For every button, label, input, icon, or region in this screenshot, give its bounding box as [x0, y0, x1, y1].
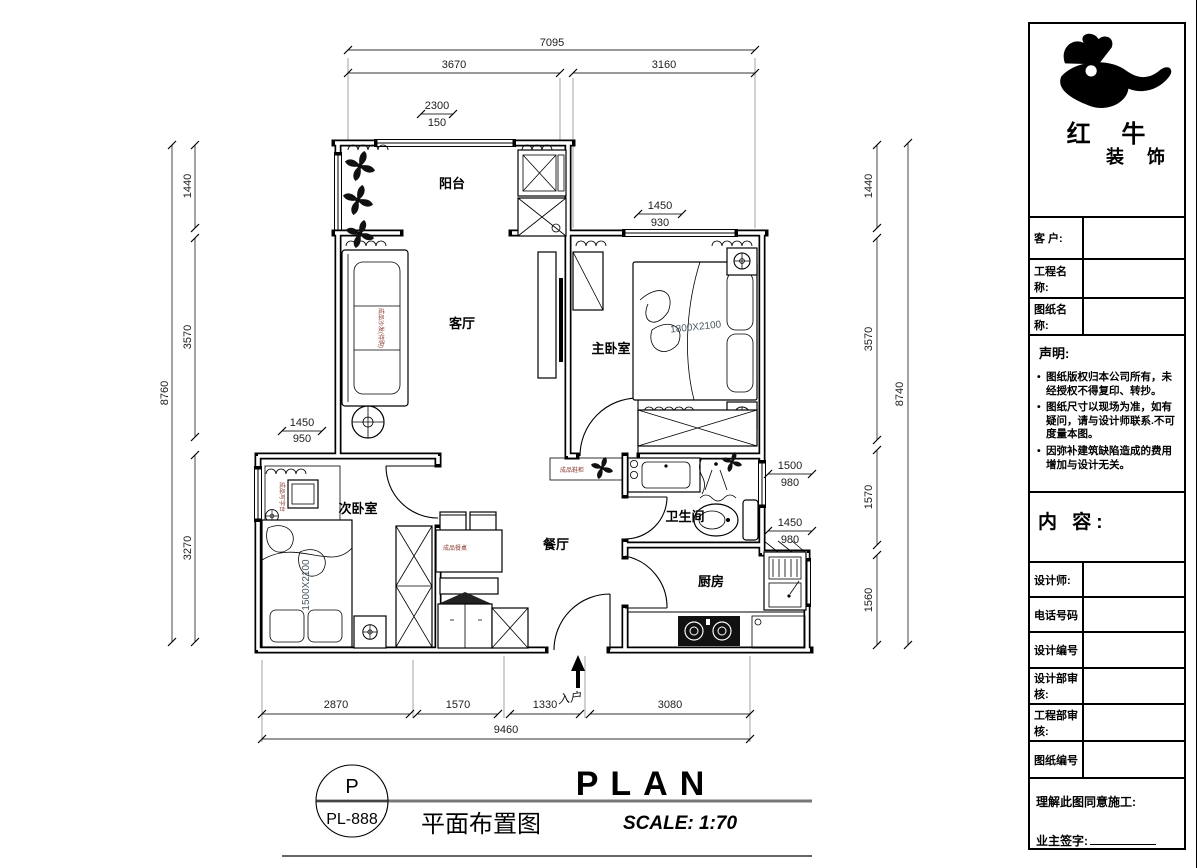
field-drawing-no: 图纸编号 [1030, 742, 1184, 779]
dim-bottom-4: 3080 [658, 699, 682, 711]
dim-top-overall: 7095 [540, 37, 564, 49]
plant-icon [343, 185, 373, 215]
dim-balcony-win-num: 2300 [425, 100, 449, 112]
tv-panel [559, 278, 563, 362]
brand-box: 红 牛 装 饰 [1030, 24, 1184, 218]
badge-code: PL-888 [326, 811, 378, 828]
statement-heading: 声明: [1039, 346, 1179, 363]
field-project: 工程名称: [1030, 260, 1184, 299]
bath-door [625, 497, 667, 539]
dim-right-overall: 8740 [894, 382, 906, 406]
dim-right-4: 1560 [863, 588, 875, 612]
content-heading: 内 容: [1030, 493, 1184, 563]
field-eng-review: 工程部审核: [1030, 705, 1184, 742]
field-client-value [1084, 218, 1184, 258]
dim-top-right: 3160 [652, 59, 676, 71]
dim-bath-win-den: 980 [781, 477, 799, 489]
field-phone-label: 电话号码 [1030, 598, 1084, 631]
dim-right-3: 1570 [863, 485, 875, 509]
room-label-second: 次卧室 [338, 501, 377, 516]
room-label-balcony: 阳台 [439, 176, 465, 191]
statement-item: 因弥补建筑缺陷造成的费用增加与设计无关。 [1035, 445, 1179, 472]
approval-box: 理解此图同意施工: 业主签字: [1030, 779, 1184, 849]
field-drawing-no-label: 图纸编号 [1030, 742, 1084, 777]
sofa [342, 250, 408, 406]
dim-left-3: 3270 [182, 536, 194, 560]
corner-unit [752, 616, 805, 648]
second-wardrobe [396, 526, 432, 647]
dim-left-1: 1440 [182, 174, 194, 198]
room-label-bath: 卫生间 [665, 509, 704, 524]
plant-icon [345, 151, 375, 181]
field-drawing-name-label: 图纸名称: [1030, 299, 1084, 334]
bathroom [628, 452, 758, 540]
field-client: 客 户: [1030, 218, 1184, 260]
room-label-dining: 餐厅 [542, 537, 569, 552]
field-drawing-name: 图纸名称: [1030, 299, 1184, 336]
field-project-label: 工程名称: [1030, 260, 1084, 297]
dim-bottom-3: 1330 [533, 699, 557, 711]
footer-scale: SCALE: 1:70 [623, 813, 737, 834]
sofa-label: 成品沙发(待购) [377, 308, 385, 348]
title-block: 红 牛 装 饰 客 户: 工程名称: 图纸名称: 声明: 图纸版权归本公司所有，… [1028, 22, 1186, 850]
second-bedroom-door [386, 466, 438, 518]
room-label-master: 主卧室 [591, 341, 630, 356]
dim-kitchen-win-num: 1450 [778, 517, 802, 529]
field-project-value [1084, 260, 1184, 297]
dim-bottom-1: 2870 [324, 699, 348, 711]
approval-line: 理解此图同意施工: [1036, 793, 1178, 810]
dining-area: 成品餐桌 成品鞋柜 [436, 457, 622, 648]
statement-box: 声明: 图纸版权归本公司所有，未经授权不得复印、转抄。 图纸尺寸以现场为准，如有… [1030, 336, 1184, 493]
shoe-cabinet-label: 成品鞋柜 [560, 466, 584, 474]
room-label-kitchen: 厨房 [698, 574, 724, 589]
master-door [580, 398, 638, 456]
bath-vanity [628, 458, 700, 492]
dim-left-overall: 8760 [159, 381, 171, 405]
owner-signature-label: 业主签字: [1036, 834, 1088, 848]
dim-kitchen-win-den: 980 [781, 534, 799, 546]
field-designer: 设计师: [1030, 563, 1184, 598]
desk-label: 成品写字台 [278, 482, 286, 512]
dim-bottom-2: 1570 [446, 699, 470, 711]
plant-icon [591, 457, 613, 479]
lamp-icon [363, 625, 377, 639]
footer-title-cn: 平面布置图 [421, 811, 541, 838]
field-drawing-name-value [1084, 299, 1184, 334]
dim-left-2: 3570 [182, 325, 194, 349]
kitchen-sink [764, 552, 806, 610]
badge-letter: P [345, 776, 358, 798]
statement-item: 图纸版权归本公司所有，未经授权不得复印、转抄。 [1035, 371, 1179, 398]
field-client-label: 客 户: [1030, 218, 1084, 258]
entry-label: 入户 [557, 689, 584, 706]
dim-second-win-num: 1450 [290, 417, 314, 429]
dim-bottom-overall: 9460 [494, 724, 518, 736]
field-design-no-label: 设计编号 [1030, 633, 1084, 667]
footer-title-en: PLAN [576, 765, 717, 803]
dim-master-win-den: 930 [651, 217, 669, 229]
dim-second-win-den: 950 [293, 433, 311, 445]
bench [440, 578, 498, 594]
tv-cabinet [538, 252, 556, 378]
floor-plan: 7095 3670 3160 2300 150 1450 930 1450 95… [0, 0, 1020, 868]
dim-master-win-num: 1450 [648, 200, 672, 212]
lamp-icon [734, 253, 750, 269]
room-label-living: 客厅 [449, 316, 475, 331]
statement-item: 图纸尺寸以现场为准，如有疑问，请与设计师联系.不可度量本图。 [1035, 401, 1179, 442]
living-room: 成品沙发(待购) [342, 250, 563, 438]
entry-arrow-icon [571, 655, 585, 671]
kitchen-door [625, 556, 667, 608]
field-eng-review-label: 工程部审核: [1030, 705, 1084, 740]
redniu-logo [1037, 30, 1177, 122]
field-design-review-label: 设计部审核: [1030, 669, 1084, 703]
field-design-no: 设计编号 [1030, 633, 1184, 669]
dim-right-2: 3570 [863, 327, 875, 351]
drawing-sheet: 7095 3670 3160 2300 150 1450 930 1450 95… [0, 0, 1200, 868]
field-designer-label: 设计师: [1030, 563, 1084, 596]
brand-name: 红 牛 [1030, 122, 1184, 147]
entry-door [554, 594, 610, 650]
dim-right-1: 1440 [863, 174, 875, 198]
dim-top-left: 3670 [442, 59, 466, 71]
signature-line [1090, 833, 1156, 845]
footer: P PL-888 平面布置图 PLAN SCALE: 1:70 [282, 765, 812, 856]
second-bedroom: 成品写字台 1500X2100 [262, 466, 432, 648]
entry-marker: 入户 [557, 655, 585, 707]
field-design-review: 设计部审核: [1030, 669, 1184, 705]
field-phone: 电话号码 [1030, 598, 1184, 633]
sheet-border [1196, 0, 1197, 868]
dim-bath-win-num: 1500 [778, 460, 802, 472]
second-bed-size: 1500X2100 [301, 559, 312, 611]
brand-sub: 装 饰 [1030, 147, 1184, 168]
dim-balcony-win-den: 150 [428, 117, 446, 129]
dining-table-label: 成品餐桌 [443, 544, 467, 552]
kitchen [628, 552, 806, 648]
